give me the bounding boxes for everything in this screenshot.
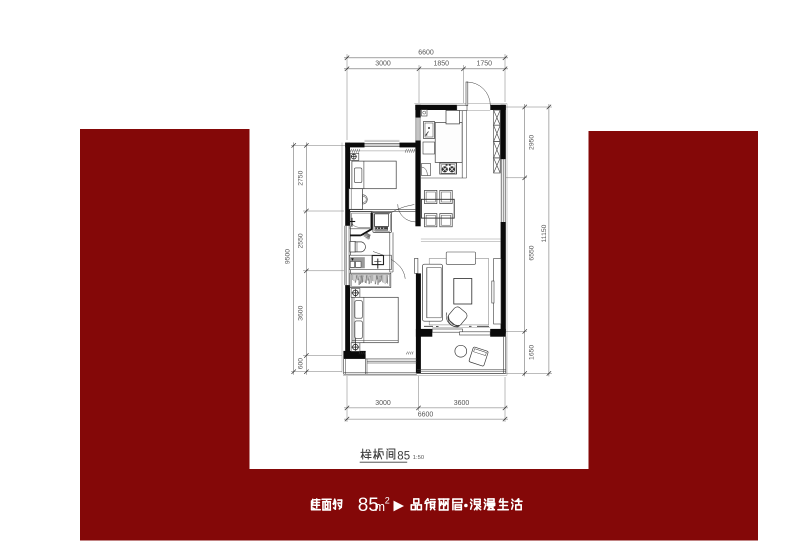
svg-text:2550: 2550 bbox=[298, 233, 305, 248]
svg-text:1850: 1850 bbox=[434, 61, 450, 68]
svg-text:6600: 6600 bbox=[418, 50, 434, 57]
svg-text:3000: 3000 bbox=[375, 400, 391, 407]
svg-text:1650: 1650 bbox=[528, 345, 535, 360]
svg-text:1750: 1750 bbox=[477, 61, 493, 68]
svg-text:m: m bbox=[375, 500, 385, 514]
svg-text:9500: 9500 bbox=[284, 249, 291, 264]
svg-text:3000: 3000 bbox=[375, 61, 391, 68]
svg-text:85: 85 bbox=[397, 451, 410, 463]
svg-text:11150: 11150 bbox=[541, 224, 548, 242]
svg-text:6600: 6600 bbox=[418, 411, 434, 418]
svg-text:3600: 3600 bbox=[454, 400, 470, 407]
svg-text:2750: 2750 bbox=[298, 170, 305, 185]
svg-text:1:50: 1:50 bbox=[413, 455, 424, 461]
svg-text:600: 600 bbox=[298, 358, 305, 370]
svg-text:3600: 3600 bbox=[298, 305, 305, 320]
svg-text:2: 2 bbox=[385, 496, 390, 506]
svg-text:2950: 2950 bbox=[528, 135, 535, 150]
svg-text:6550: 6550 bbox=[528, 245, 535, 260]
